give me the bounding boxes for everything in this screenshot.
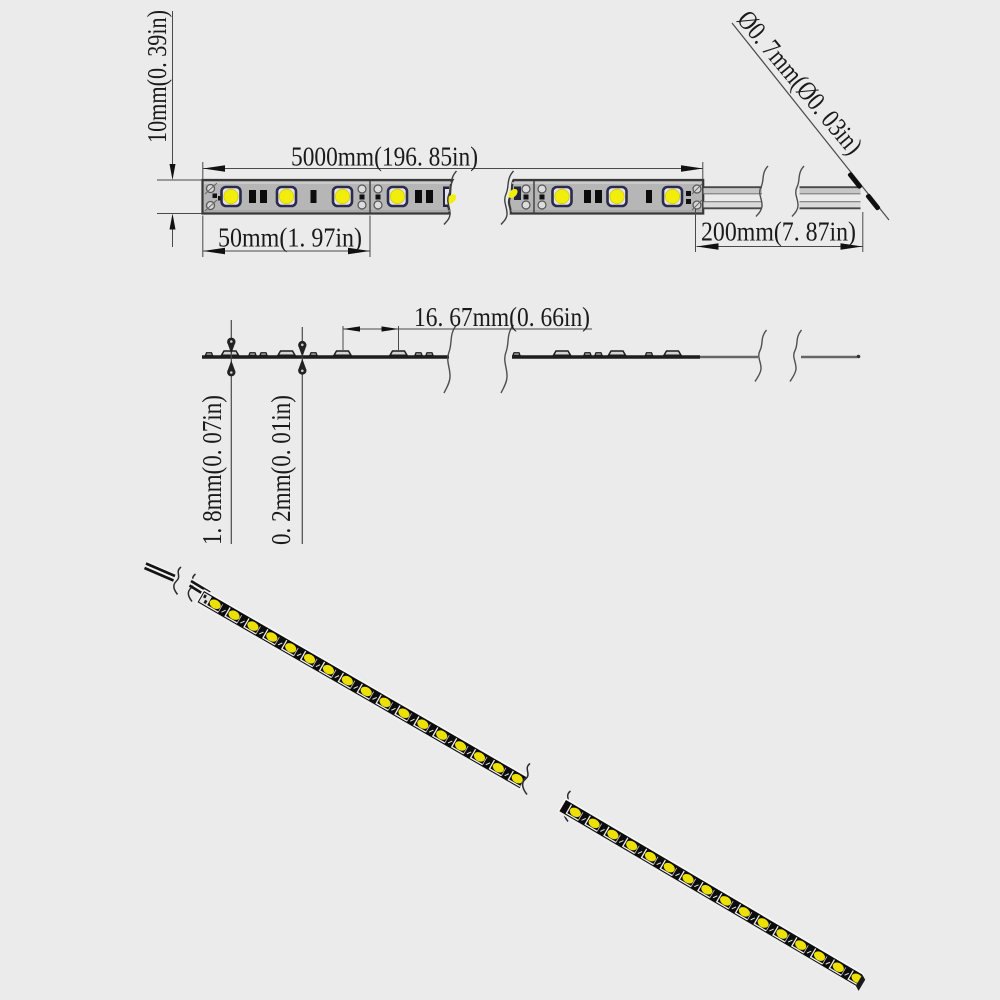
svg-text:16. 67mm(0. 66in): 16. 67mm(0. 66in) bbox=[414, 302, 590, 332]
svg-text:5000mm(196. 85in): 5000mm(196. 85in) bbox=[291, 142, 478, 172]
svg-text:0. 2mm(0. 01in): 0. 2mm(0. 01in) bbox=[266, 395, 296, 545]
svg-text:200mm(7. 87in): 200mm(7. 87in) bbox=[701, 217, 856, 247]
svg-text:10mm(0. 39in): 10mm(0. 39in) bbox=[142, 10, 172, 143]
svg-text:1. 8mm(0. 07in): 1. 8mm(0. 07in) bbox=[197, 395, 227, 545]
svg-text:50mm(1. 97in): 50mm(1. 97in) bbox=[218, 223, 362, 253]
